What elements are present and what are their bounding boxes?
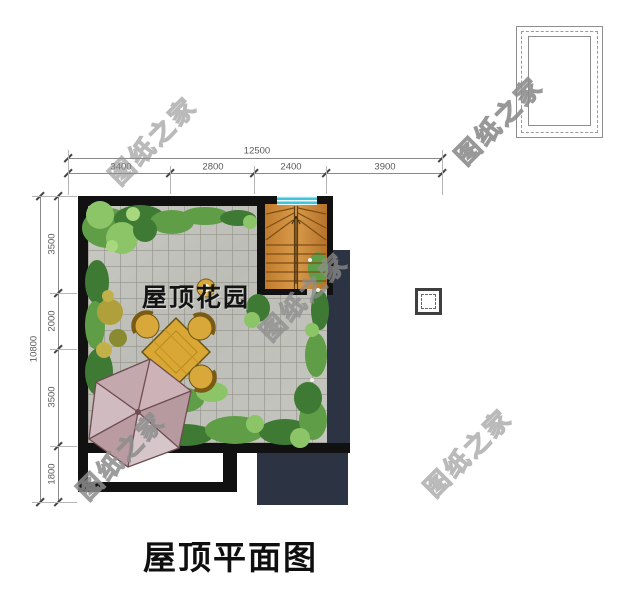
dim-top-seg4-label: 3900 bbox=[374, 162, 395, 173]
watermark: 图纸之家 bbox=[415, 400, 520, 505]
column-symbol bbox=[415, 288, 442, 315]
extension-line bbox=[32, 196, 77, 197]
dim-left-total-line bbox=[40, 196, 41, 502]
dim-left-seg2-label: 2000 bbox=[47, 310, 58, 331]
skylight-strip bbox=[277, 196, 317, 205]
extension-line bbox=[68, 150, 69, 195]
garden-label: 屋顶花园 bbox=[142, 278, 250, 314]
extension-line bbox=[326, 166, 327, 194]
drawing-title: 屋顶平面图 bbox=[143, 531, 318, 579]
extension-line bbox=[50, 293, 77, 294]
dim-left-seg4-label: 1800 bbox=[47, 463, 58, 484]
extension-line bbox=[32, 502, 77, 503]
extension-line bbox=[50, 349, 77, 350]
dim-top-seg3-label: 2400 bbox=[280, 162, 301, 173]
lower-roof-fill-bottom bbox=[257, 452, 348, 505]
watermark: 图纸之家 bbox=[100, 88, 205, 193]
dim-left-total-label: 10800 bbox=[29, 336, 40, 362]
extension-line bbox=[442, 150, 443, 195]
dim-left-seg3-label: 3500 bbox=[47, 386, 58, 407]
column-dashed-inner bbox=[421, 294, 436, 309]
dim-left-seg1-label: 3500 bbox=[47, 233, 58, 254]
lower-roof-fill-right2 bbox=[327, 295, 350, 452]
extension-line bbox=[170, 166, 171, 194]
wall-notch-right bbox=[223, 443, 237, 492]
extension-line bbox=[254, 166, 255, 194]
dim-top-total-label: 12500 bbox=[244, 146, 270, 157]
stairwell-wall-left bbox=[257, 196, 265, 295]
extension-line bbox=[50, 446, 77, 447]
roof-plan-drawing: 12500 3400 2800 2400 3900 10800 3500 200… bbox=[0, 0, 640, 602]
dim-top-seg2-label: 2800 bbox=[202, 162, 223, 173]
